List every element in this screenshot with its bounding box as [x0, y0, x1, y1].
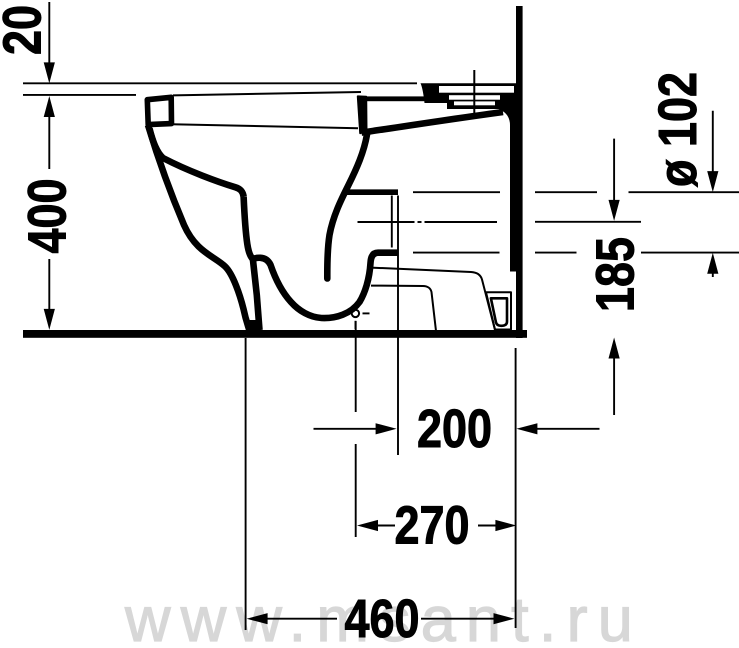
svg-text:20: 20: [0, 5, 52, 55]
svg-text:200: 200: [417, 399, 492, 459]
svg-text:270: 270: [395, 496, 470, 556]
svg-text:185: 185: [586, 237, 646, 312]
svg-text:ø 102: ø 102: [648, 72, 708, 187]
svg-text:400: 400: [18, 179, 78, 254]
svg-text:460: 460: [345, 589, 420, 648]
